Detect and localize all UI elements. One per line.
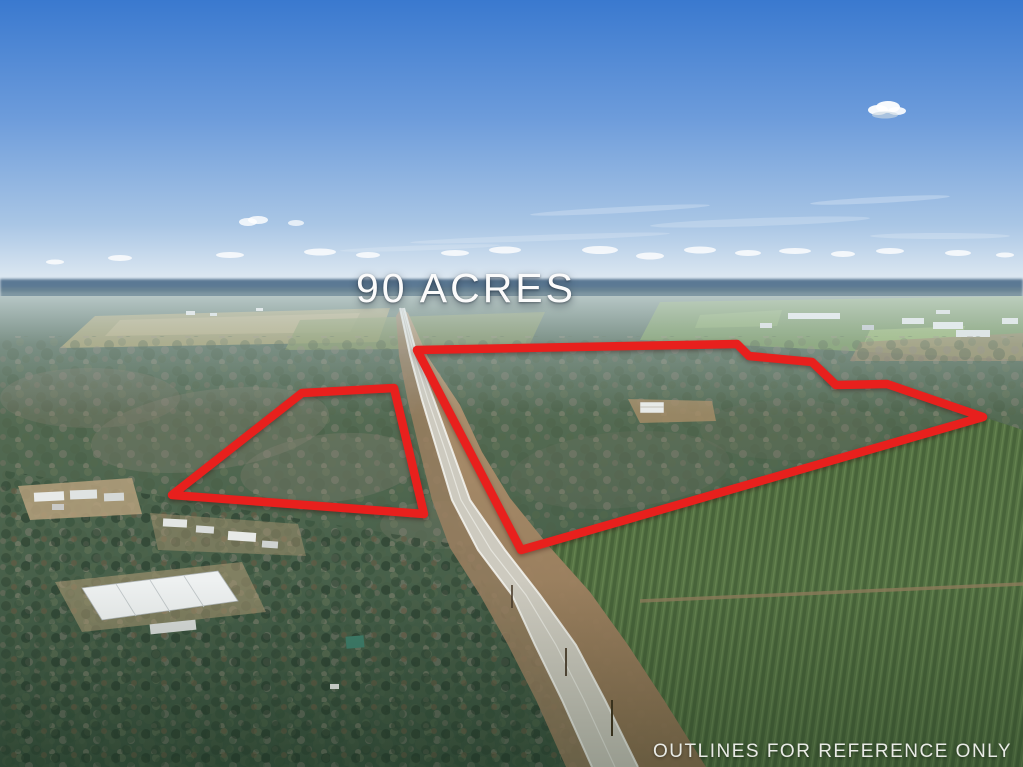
mobile-home [196, 525, 214, 533]
cloud-puff [489, 247, 521, 254]
acreage-label: 90 ACRES [356, 265, 576, 311]
cloud-puff [876, 248, 904, 254]
cloud-puff [304, 249, 336, 256]
aerial-photo: 90 ACRES OUTLINES FOR REFERENCE ONLY [0, 0, 1023, 767]
bottom-vignette [0, 580, 1023, 767]
cloud-puff [636, 253, 664, 260]
cloud-puff [441, 250, 469, 256]
cloud-puff [216, 252, 244, 258]
cloud-wisp [870, 233, 1010, 239]
atmospheric-haze [0, 296, 1023, 416]
shed [52, 504, 64, 510]
mobile-home [104, 493, 124, 502]
aerial-photo-canvas: 90 ACRES OUTLINES FOR REFERENCE ONLY [0, 0, 1023, 767]
cloud-shadow [872, 112, 898, 119]
mobile-home [163, 518, 187, 527]
cloud-puff [582, 246, 618, 254]
mobile-home [34, 491, 64, 502]
cloud-puff [945, 250, 971, 256]
mobile-home [70, 490, 97, 500]
cloud-puff [288, 220, 304, 226]
cloud-puff [831, 251, 855, 257]
cloud-puff [356, 252, 380, 258]
cloud-puff [779, 248, 811, 254]
cloud-puff [684, 247, 716, 254]
cloud-puff [735, 250, 761, 256]
mobile-home [262, 540, 278, 548]
cloud-puff [248, 216, 268, 224]
cloud-puff [996, 253, 1014, 258]
cloud-puff [108, 255, 132, 261]
cloud-puff [46, 260, 64, 265]
disclaimer-label: OUTLINES FOR REFERENCE ONLY [653, 741, 1012, 762]
